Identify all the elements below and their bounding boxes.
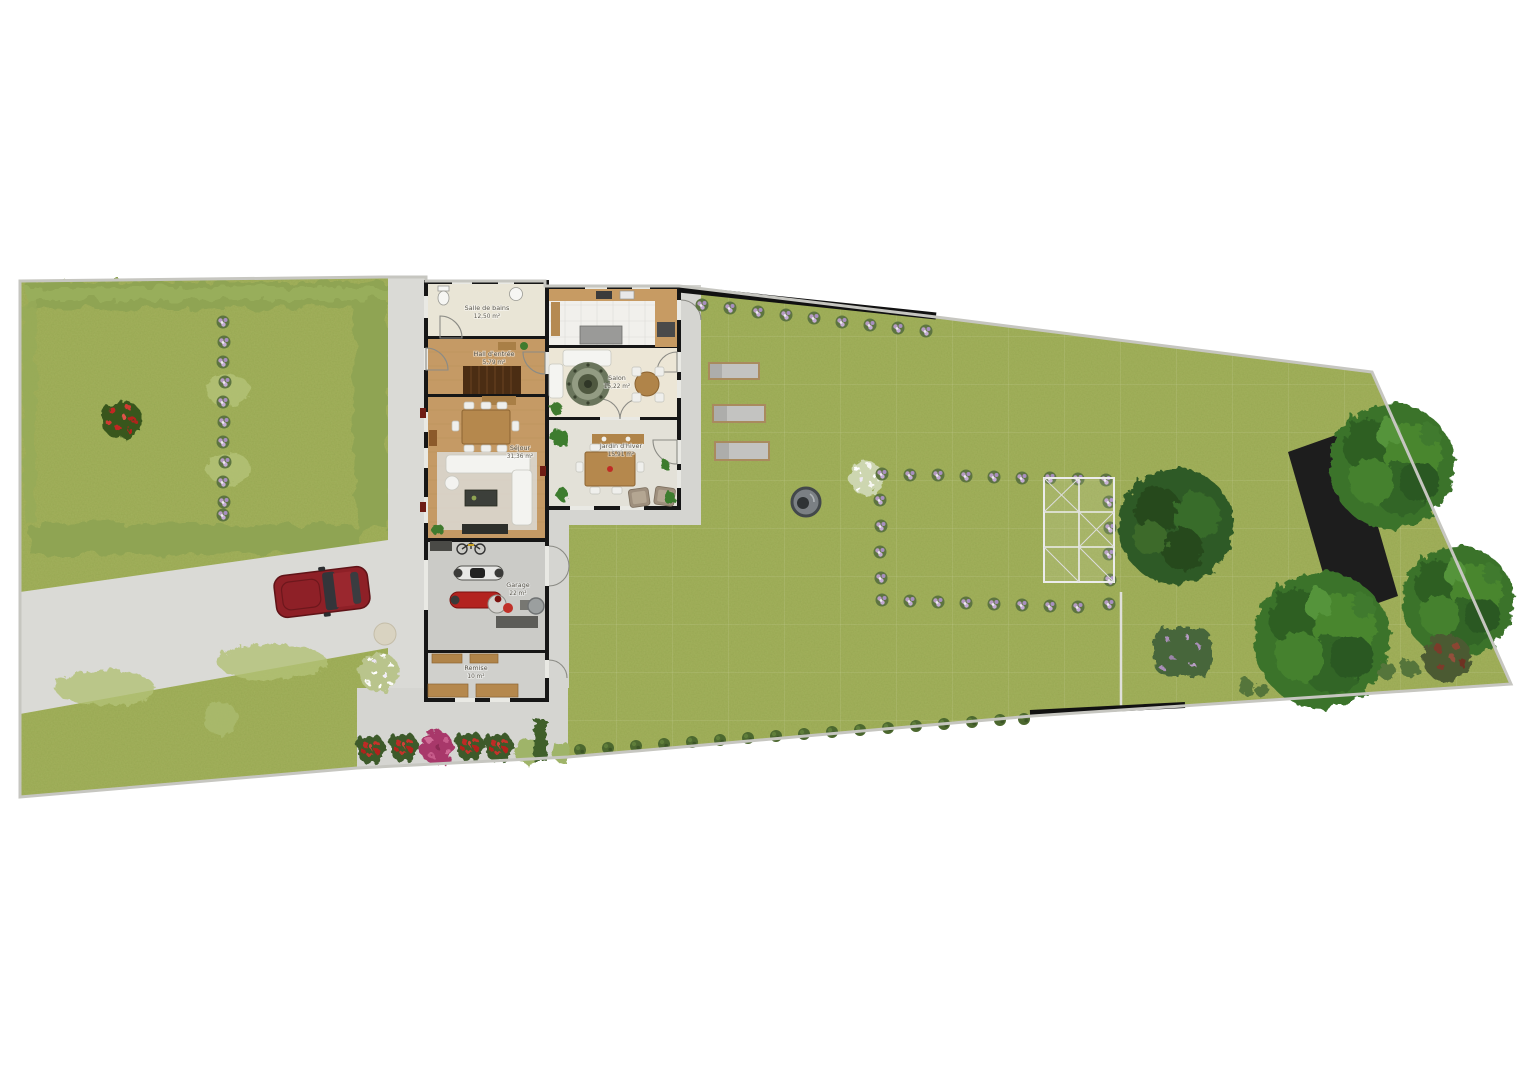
tall-hedge-column [534, 720, 547, 762]
big-tree [1254, 572, 1391, 709]
wg-plant-icon [551, 429, 569, 447]
sink-icon [510, 288, 523, 301]
patio-east-strip [681, 285, 701, 525]
flower-cluster [1016, 472, 1029, 485]
hall-bench [498, 342, 516, 350]
greenhouse [1044, 478, 1114, 582]
storage-shelf [470, 654, 498, 663]
salon-chaise [549, 364, 563, 398]
flower-cluster [218, 416, 231, 429]
hedge-left [22, 300, 36, 520]
hall-plant-icon [520, 342, 528, 350]
area-sejour: 31,36 m² [507, 453, 533, 460]
flower-cluster [892, 322, 905, 335]
tv-stand [462, 524, 508, 534]
sun-lounger [712, 404, 766, 423]
flower-cluster [932, 596, 945, 609]
shutter-mark [540, 466, 546, 476]
salon-chair [655, 367, 664, 376]
small-bush [1255, 683, 1269, 697]
wall-cabinet [429, 430, 437, 446]
flower-cluster [932, 469, 945, 482]
flower-cluster [960, 470, 973, 483]
wg-sideboard-item [626, 437, 631, 442]
boundary-bush [798, 728, 810, 740]
flower-cluster [1044, 600, 1057, 613]
flower-cluster [217, 436, 230, 449]
toilet-icon [438, 291, 449, 305]
hedge-right [354, 302, 388, 528]
label-storage: Remise [464, 664, 487, 672]
flower-cluster [218, 336, 231, 349]
ottoman [445, 476, 459, 490]
big-tree [1329, 403, 1454, 528]
red-flower-bush [356, 734, 386, 764]
label-sejour: Séjour [510, 444, 531, 452]
red-flower-bush [484, 732, 514, 762]
coffee-table-decor [472, 496, 477, 501]
small-bush [1400, 659, 1418, 677]
wg-plant-icon [660, 460, 670, 470]
wg-centerpiece [607, 466, 613, 472]
pink-flower-bush [420, 731, 454, 765]
garden-fountain [792, 488, 820, 516]
stove-icon [596, 291, 612, 299]
site-plan-canvas: Salle de bains 12,50 m² Hall d'entrée 5,… [0, 0, 1536, 1087]
flower-cluster [780, 309, 793, 322]
rose-bush [102, 400, 142, 440]
area-storage: 10 m² [467, 673, 484, 680]
stepping-stone [374, 623, 396, 645]
area-salon: 15,22 m² [604, 383, 630, 390]
wg-armchair [628, 487, 650, 508]
label-hall: Hall d'entrée [474, 350, 515, 358]
flower-cluster [217, 356, 230, 369]
salon-chair [655, 393, 664, 402]
flower-cluster [217, 476, 230, 489]
wg-sideboard-item [602, 437, 607, 442]
flower-cluster [904, 469, 917, 482]
red-flower-bush [389, 732, 419, 762]
hedge-top-highlight [26, 287, 386, 300]
staircase [463, 366, 521, 394]
flower-cluster [874, 494, 887, 507]
flower-cluster [876, 468, 889, 481]
flower-cluster [875, 520, 888, 533]
flower-cluster [920, 325, 933, 338]
flower-cluster [1072, 601, 1085, 614]
flower-cluster [219, 376, 232, 389]
salon-plant-icon [550, 402, 562, 414]
storage-shelf [432, 654, 462, 663]
wg-plant-icon [556, 488, 568, 500]
flower-cluster [696, 299, 709, 312]
flower-cluster [1016, 599, 1029, 612]
sofa-vertical [512, 470, 532, 525]
site-plan-svg: Salle de bains 12,50 m² Hall d'entrée 5,… [0, 0, 1536, 1087]
flower-cluster [1103, 598, 1116, 611]
area-garage: 22 m² [509, 590, 526, 597]
flower-cluster [808, 312, 821, 325]
flower-cluster [875, 572, 888, 585]
sun-lounger [708, 362, 760, 380]
flower-cluster [864, 319, 877, 332]
shutter-mark [420, 502, 426, 512]
workbench [496, 616, 538, 628]
purple-shrub-patch [1155, 628, 1211, 676]
flower-cluster [752, 306, 765, 319]
flower-cluster [217, 396, 230, 409]
red-flower-bush [455, 731, 485, 761]
label-bathroom: Salle de bains [465, 304, 510, 312]
kitchen-sink-icon [620, 291, 634, 299]
flower-cluster [904, 595, 917, 608]
hedge-bottom [30, 524, 360, 554]
motorcycle-icon [454, 566, 504, 580]
salon-chair [632, 367, 641, 376]
white-flower-bush [359, 652, 399, 692]
garage-wall-disc [528, 598, 544, 614]
area-hall: 5,79 m² [483, 359, 506, 366]
area-bathroom: 12,50 m² [474, 313, 500, 320]
small-bush [1378, 662, 1396, 680]
dining-table [462, 410, 510, 444]
flower-cluster [219, 456, 232, 469]
kitchen-shelf [551, 302, 560, 336]
lawn-bush [217, 644, 327, 680]
label-winter-garden: Jardin d'hiver [599, 442, 643, 450]
flower-cluster [836, 316, 849, 329]
lawn-bush [55, 670, 155, 706]
flower-cluster [960, 597, 973, 610]
label-salon: Salon [608, 374, 626, 382]
small-bush [1238, 679, 1254, 695]
vise-icon [503, 603, 513, 613]
patio-below-winter-garden [549, 510, 701, 525]
flower-cluster [988, 471, 1001, 484]
coffee-table [465, 490, 497, 506]
flower-cluster [217, 509, 230, 522]
label-garage: Garage [506, 581, 529, 589]
toilet-tank [438, 286, 449, 291]
shutter-mark [420, 408, 426, 418]
wg-plant-icon [664, 492, 676, 504]
boundary-bush [1018, 713, 1030, 725]
lawn-bush [203, 701, 237, 735]
area-winter-garden: 15,91 m² [608, 451, 634, 458]
kitchen-island [580, 326, 622, 344]
fridge-icon [657, 322, 675, 337]
flower-cluster [724, 302, 737, 315]
shade-tree [1118, 468, 1234, 584]
flower-cluster [217, 316, 230, 329]
autumn-bush [1423, 634, 1471, 682]
garage-shelf [430, 541, 452, 551]
flower-cluster [876, 594, 889, 607]
salon-chair [632, 393, 641, 402]
flower-cluster [988, 598, 1001, 611]
flower-cluster [218, 496, 231, 509]
sejour-plant-icon [432, 524, 444, 536]
flower-cluster [874, 546, 887, 559]
storage-table [428, 684, 468, 697]
sun-lounger [714, 441, 770, 461]
storage-table [476, 684, 518, 697]
kitchen-counter-right [655, 289, 677, 347]
